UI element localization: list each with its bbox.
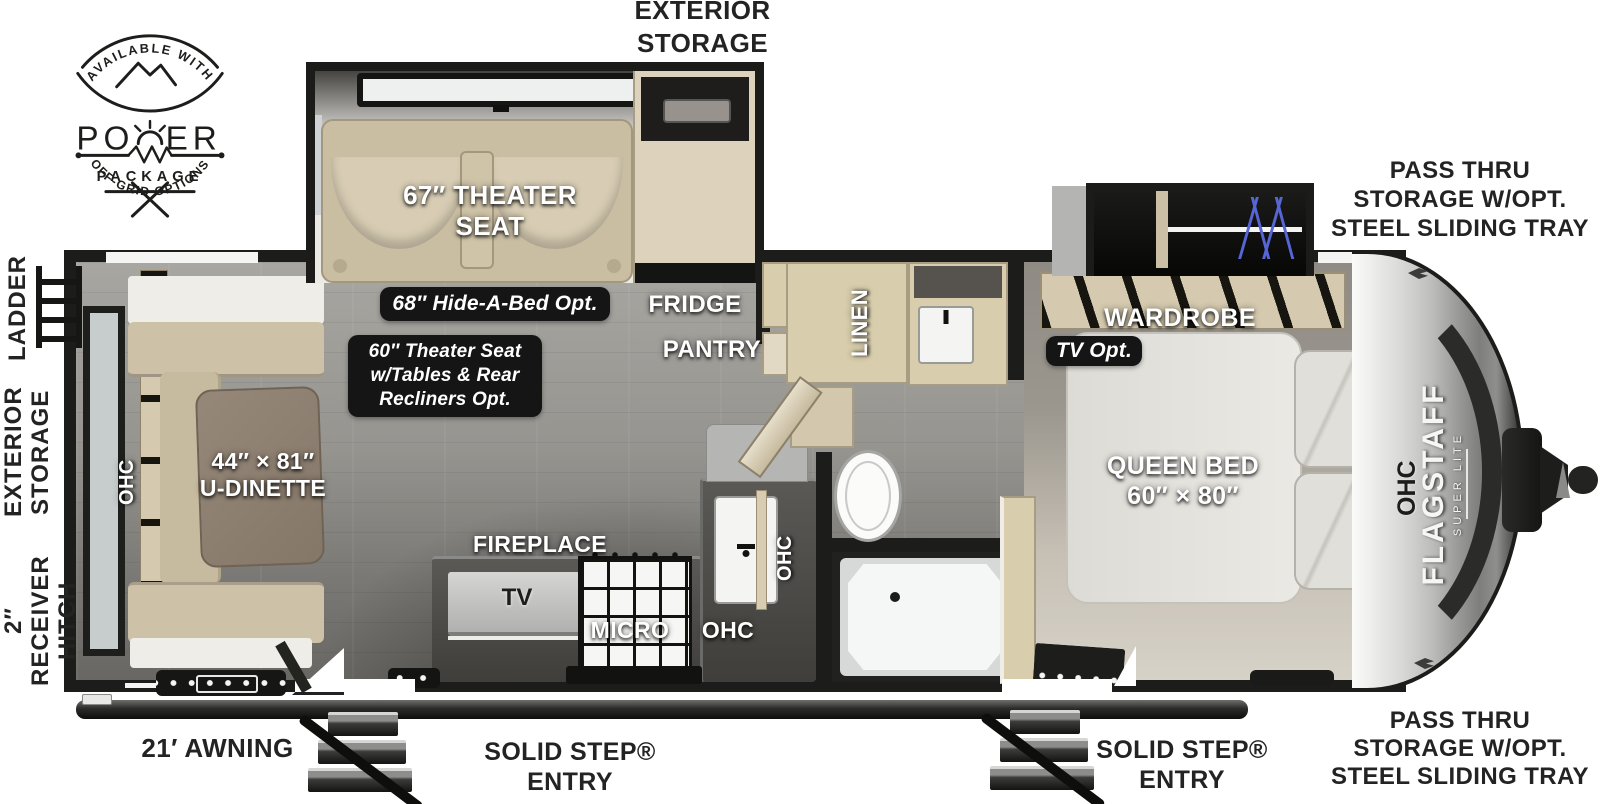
dinette-top-window [106, 252, 258, 263]
floorplan-diagram: AVAILABLE WITH OFF-GRID OPTIONS PO ER PA… [0, 0, 1600, 804]
ladder-icon [36, 266, 82, 348]
bedroom-mat [1250, 670, 1334, 686]
fridge-tray [663, 99, 731, 123]
theater-opt-line2: w/Tables & Rear [370, 364, 519, 388]
window-latch [493, 105, 509, 112]
bath-vanity [908, 262, 1008, 386]
hitch-coupler [1568, 466, 1598, 494]
exterior-storage-top-label: EXTERIOR STORAGE [600, 0, 805, 60]
micro-label: MICRO [585, 617, 675, 644]
bath-faucet-icon [944, 310, 949, 324]
brand-underline [1466, 449, 1468, 519]
brand-name: FLAGSTAFF [1417, 334, 1451, 634]
mountains-icon [117, 63, 176, 87]
theater-slide-out [306, 62, 764, 283]
vanity-inset [914, 266, 1002, 298]
bedroom-cabinet [1000, 496, 1036, 684]
theater-opt-line3: Recliners Opt. [379, 388, 511, 412]
hide-a-bed-text: 68″ Hide-A-Bed Opt. [392, 291, 597, 318]
tv-opt-text: TV Opt. [1056, 338, 1132, 365]
linen-label: LINEN [845, 272, 875, 374]
tv-shelf [448, 636, 580, 640]
entry-bedroom-opening [1002, 679, 1112, 693]
brand-mark: FLAGSTAFF SUPER LITE [1417, 334, 1487, 634]
ohc-kitchen-label: OHC [688, 617, 768, 644]
pantry-label: PANTRY [647, 336, 777, 364]
cutting-board [756, 490, 767, 610]
wardrobe-slide-endcap [1052, 186, 1086, 276]
kitchen-sink [714, 496, 778, 604]
badge-available-with: AVAILABLE WITH [83, 40, 217, 83]
badge-er: ER [166, 120, 222, 157]
wall-bedroom-divider [1008, 252, 1024, 380]
entry-bedroom-label: SOLID STEP® ENTRY [1082, 735, 1282, 795]
sun-icon [138, 132, 162, 144]
dinette-bench-top-pad [128, 276, 324, 324]
sofa-foot-right [607, 259, 621, 273]
hangers-icon [1238, 197, 1286, 267]
badge-po: PO [76, 120, 134, 157]
ohc-dinette-label: OHC [114, 440, 140, 524]
queen-bed-label: QUEEN BED 60″ × 80″ [1078, 452, 1288, 511]
entry-platform-window [196, 675, 258, 693]
entry-platform [156, 670, 286, 696]
power-package-badge: AVAILABLE WITH OFF-GRID OPTIONS PO ER PA… [52, 26, 248, 222]
pass-thru-bottom-label: PASS THRU STORAGE W/OPT. STEEL SLIDING T… [1310, 707, 1600, 791]
badge-arc-bottom-ring [78, 73, 222, 111]
dinette-bench-bottom [128, 582, 324, 643]
fireplace-label: FIREPLACE [460, 531, 620, 558]
toilet-seat [845, 461, 891, 531]
shower-pan-inner [848, 564, 1002, 670]
logo-bird-icon [1414, 658, 1434, 669]
fridge-label: FRIDGE [630, 291, 760, 319]
pass-thru-top-label: PASS THRU STORAGE W/OPT. STEEL SLIDING T… [1310, 156, 1600, 243]
slide-window [357, 73, 645, 107]
shower-drain [890, 592, 900, 602]
fridge-base [635, 263, 755, 283]
wardrobe-divider [1156, 191, 1168, 268]
toilet [834, 450, 902, 542]
badge-package: PACKAGE [97, 169, 204, 185]
brand-sub: SUPER LITE [1452, 334, 1464, 634]
wall-bath-left [816, 452, 832, 680]
theater-seat-label: 67″ THEATER SEAT [360, 180, 620, 241]
logo-bird-icon [1408, 268, 1428, 279]
dinette-bench-top [128, 322, 324, 377]
ohc-bed-label: OHC [1392, 446, 1422, 530]
wardrobe-label: WARDROBE [1090, 304, 1270, 334]
ladder-label: LADDER [4, 252, 31, 364]
fridge-cabinet [633, 71, 755, 283]
wardrobe-slide-out [1086, 183, 1314, 276]
tv-label: TV [487, 585, 547, 611]
bath-sink [918, 306, 974, 364]
hitch-bumper [1502, 428, 1542, 532]
fridge-top-inset [641, 77, 749, 141]
stove-base [566, 666, 702, 684]
ohc-sink-label: OHC [772, 516, 798, 600]
sofa-foot-left [333, 259, 347, 273]
shower-room [832, 552, 1018, 682]
receiver-hitch-label: 2″ RECEIVER HITCH [0, 538, 81, 703]
awning-bracket [82, 694, 112, 705]
awning-label: 21′ AWNING [110, 733, 325, 765]
theater-option-badge: 60″ Theater Seat w/Tables & Rear Recline… [348, 335, 542, 417]
front-cap: FLAGSTAFF SUPER LITE [1352, 250, 1524, 692]
entry-main-label: SOLID STEP® ENTRY [465, 737, 675, 797]
theater-opt-line1: 60″ Theater Seat [369, 340, 522, 364]
hide-a-bed-option-badge: 68″ Hide-A-Bed Opt. [380, 287, 610, 321]
exterior-storage-left-label: EXTERIOR STORAGE [0, 372, 54, 532]
tv-option-badge: TV Opt. [1046, 336, 1142, 366]
faucet-base [743, 550, 750, 557]
u-dinette-label: 44″ × 81″ U-DINETTE [185, 448, 341, 502]
faucet-icon [737, 544, 755, 549]
